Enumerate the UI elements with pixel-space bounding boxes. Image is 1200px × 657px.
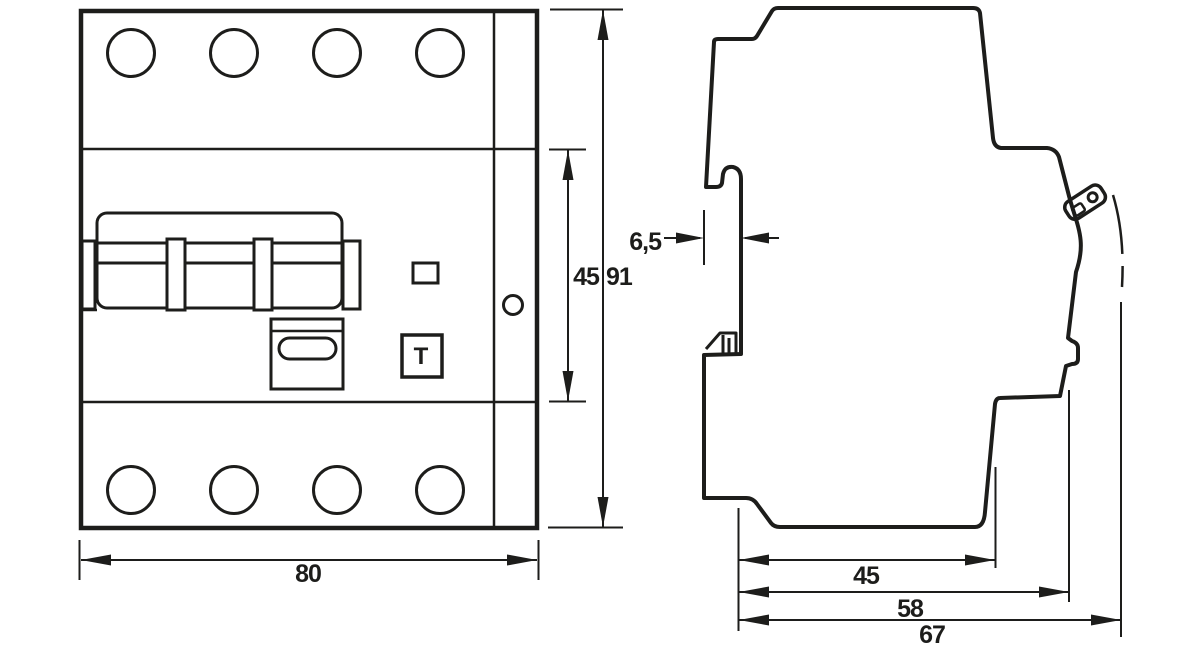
dim-depth-67: 67 xyxy=(739,302,1121,649)
arrowhead-down xyxy=(563,371,574,401)
drawing-canvas: T 80 45 xyxy=(0,0,1200,657)
dim-width-80: 80 xyxy=(80,540,539,588)
lever-swing-arc xyxy=(1113,195,1123,287)
dim-label-80: 80 xyxy=(295,560,321,588)
arrowhead-left xyxy=(739,587,769,598)
device-profile-outline xyxy=(704,8,1081,527)
arrowhead-right xyxy=(965,555,995,566)
toggle-lever-bar xyxy=(254,239,272,310)
dim-label-6-5: 6,5 xyxy=(629,228,662,256)
arrowhead-left xyxy=(741,233,769,244)
arrowhead-left xyxy=(739,555,769,566)
front-housing-outline xyxy=(81,11,537,528)
dim-label-91: 91 xyxy=(606,263,633,291)
arrowhead-left xyxy=(81,555,111,566)
dim-module-height-45: 45 xyxy=(549,150,600,402)
toggle-end-cap-right xyxy=(343,241,360,309)
lever-sealing-hole xyxy=(1086,191,1098,203)
front-view: T xyxy=(81,11,537,528)
test-button-label: T xyxy=(414,343,429,370)
dim-depth-58: 58 xyxy=(739,390,1069,623)
dim-label-67: 67 xyxy=(919,621,945,649)
arrowhead-up xyxy=(598,10,609,40)
dim-rail-recess-6-5: 6,5 xyxy=(629,210,779,265)
arrowhead-right xyxy=(507,555,537,566)
toggle-lever-bar xyxy=(167,239,185,310)
arrowhead-up xyxy=(563,150,574,180)
dim-label-45-front: 45 xyxy=(573,263,600,291)
din-rail-claw xyxy=(706,333,736,354)
arrowhead-right xyxy=(1091,615,1121,626)
dim-label-58: 58 xyxy=(897,595,924,623)
arrowhead-right xyxy=(676,233,704,244)
side-view xyxy=(704,8,1123,527)
arrowhead-right xyxy=(1039,587,1069,598)
arrowhead-down xyxy=(598,497,609,527)
dimension-drawing: T 80 45 xyxy=(0,0,1200,657)
dim-label-45-side: 45 xyxy=(853,562,880,590)
toggle-end-cap-left xyxy=(82,241,95,309)
arrowhead-left xyxy=(739,615,769,626)
